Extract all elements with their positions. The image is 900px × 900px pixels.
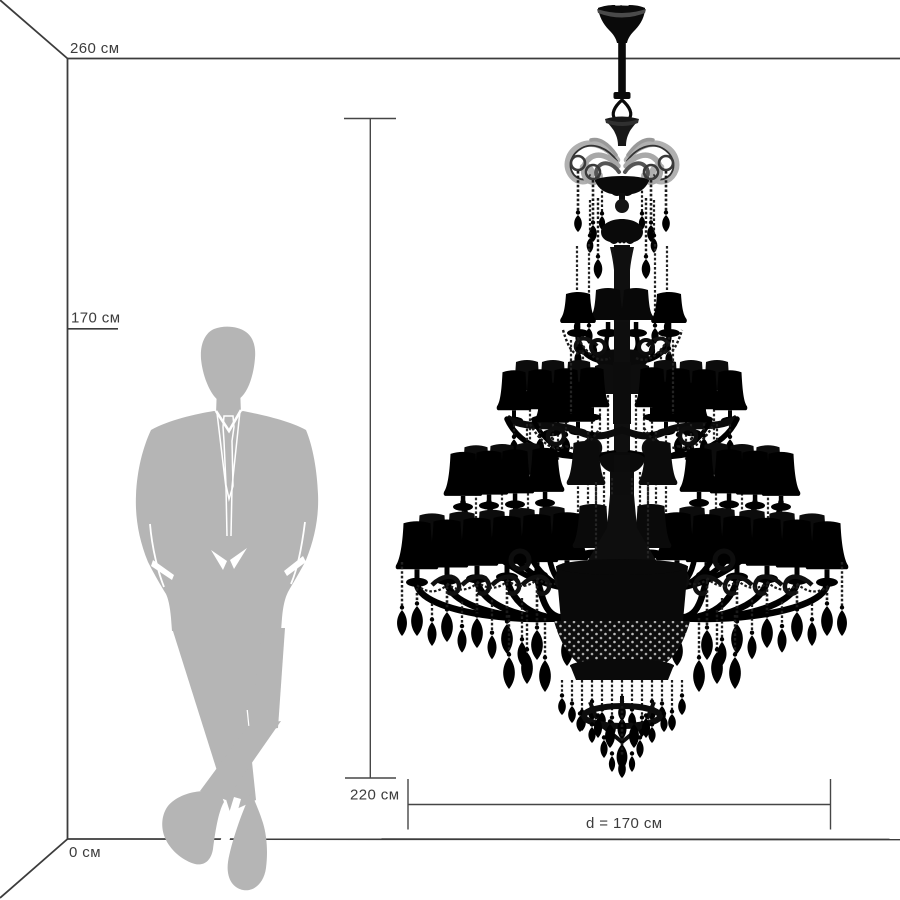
svg-text:260 см: 260 см — [70, 40, 119, 57]
svg-text:0 см: 0 см — [69, 844, 101, 861]
svg-text:d = 170 см: d = 170 см — [586, 815, 662, 832]
svg-text:170 см: 170 см — [71, 310, 120, 327]
svg-text:220 см: 220 см — [350, 787, 399, 804]
